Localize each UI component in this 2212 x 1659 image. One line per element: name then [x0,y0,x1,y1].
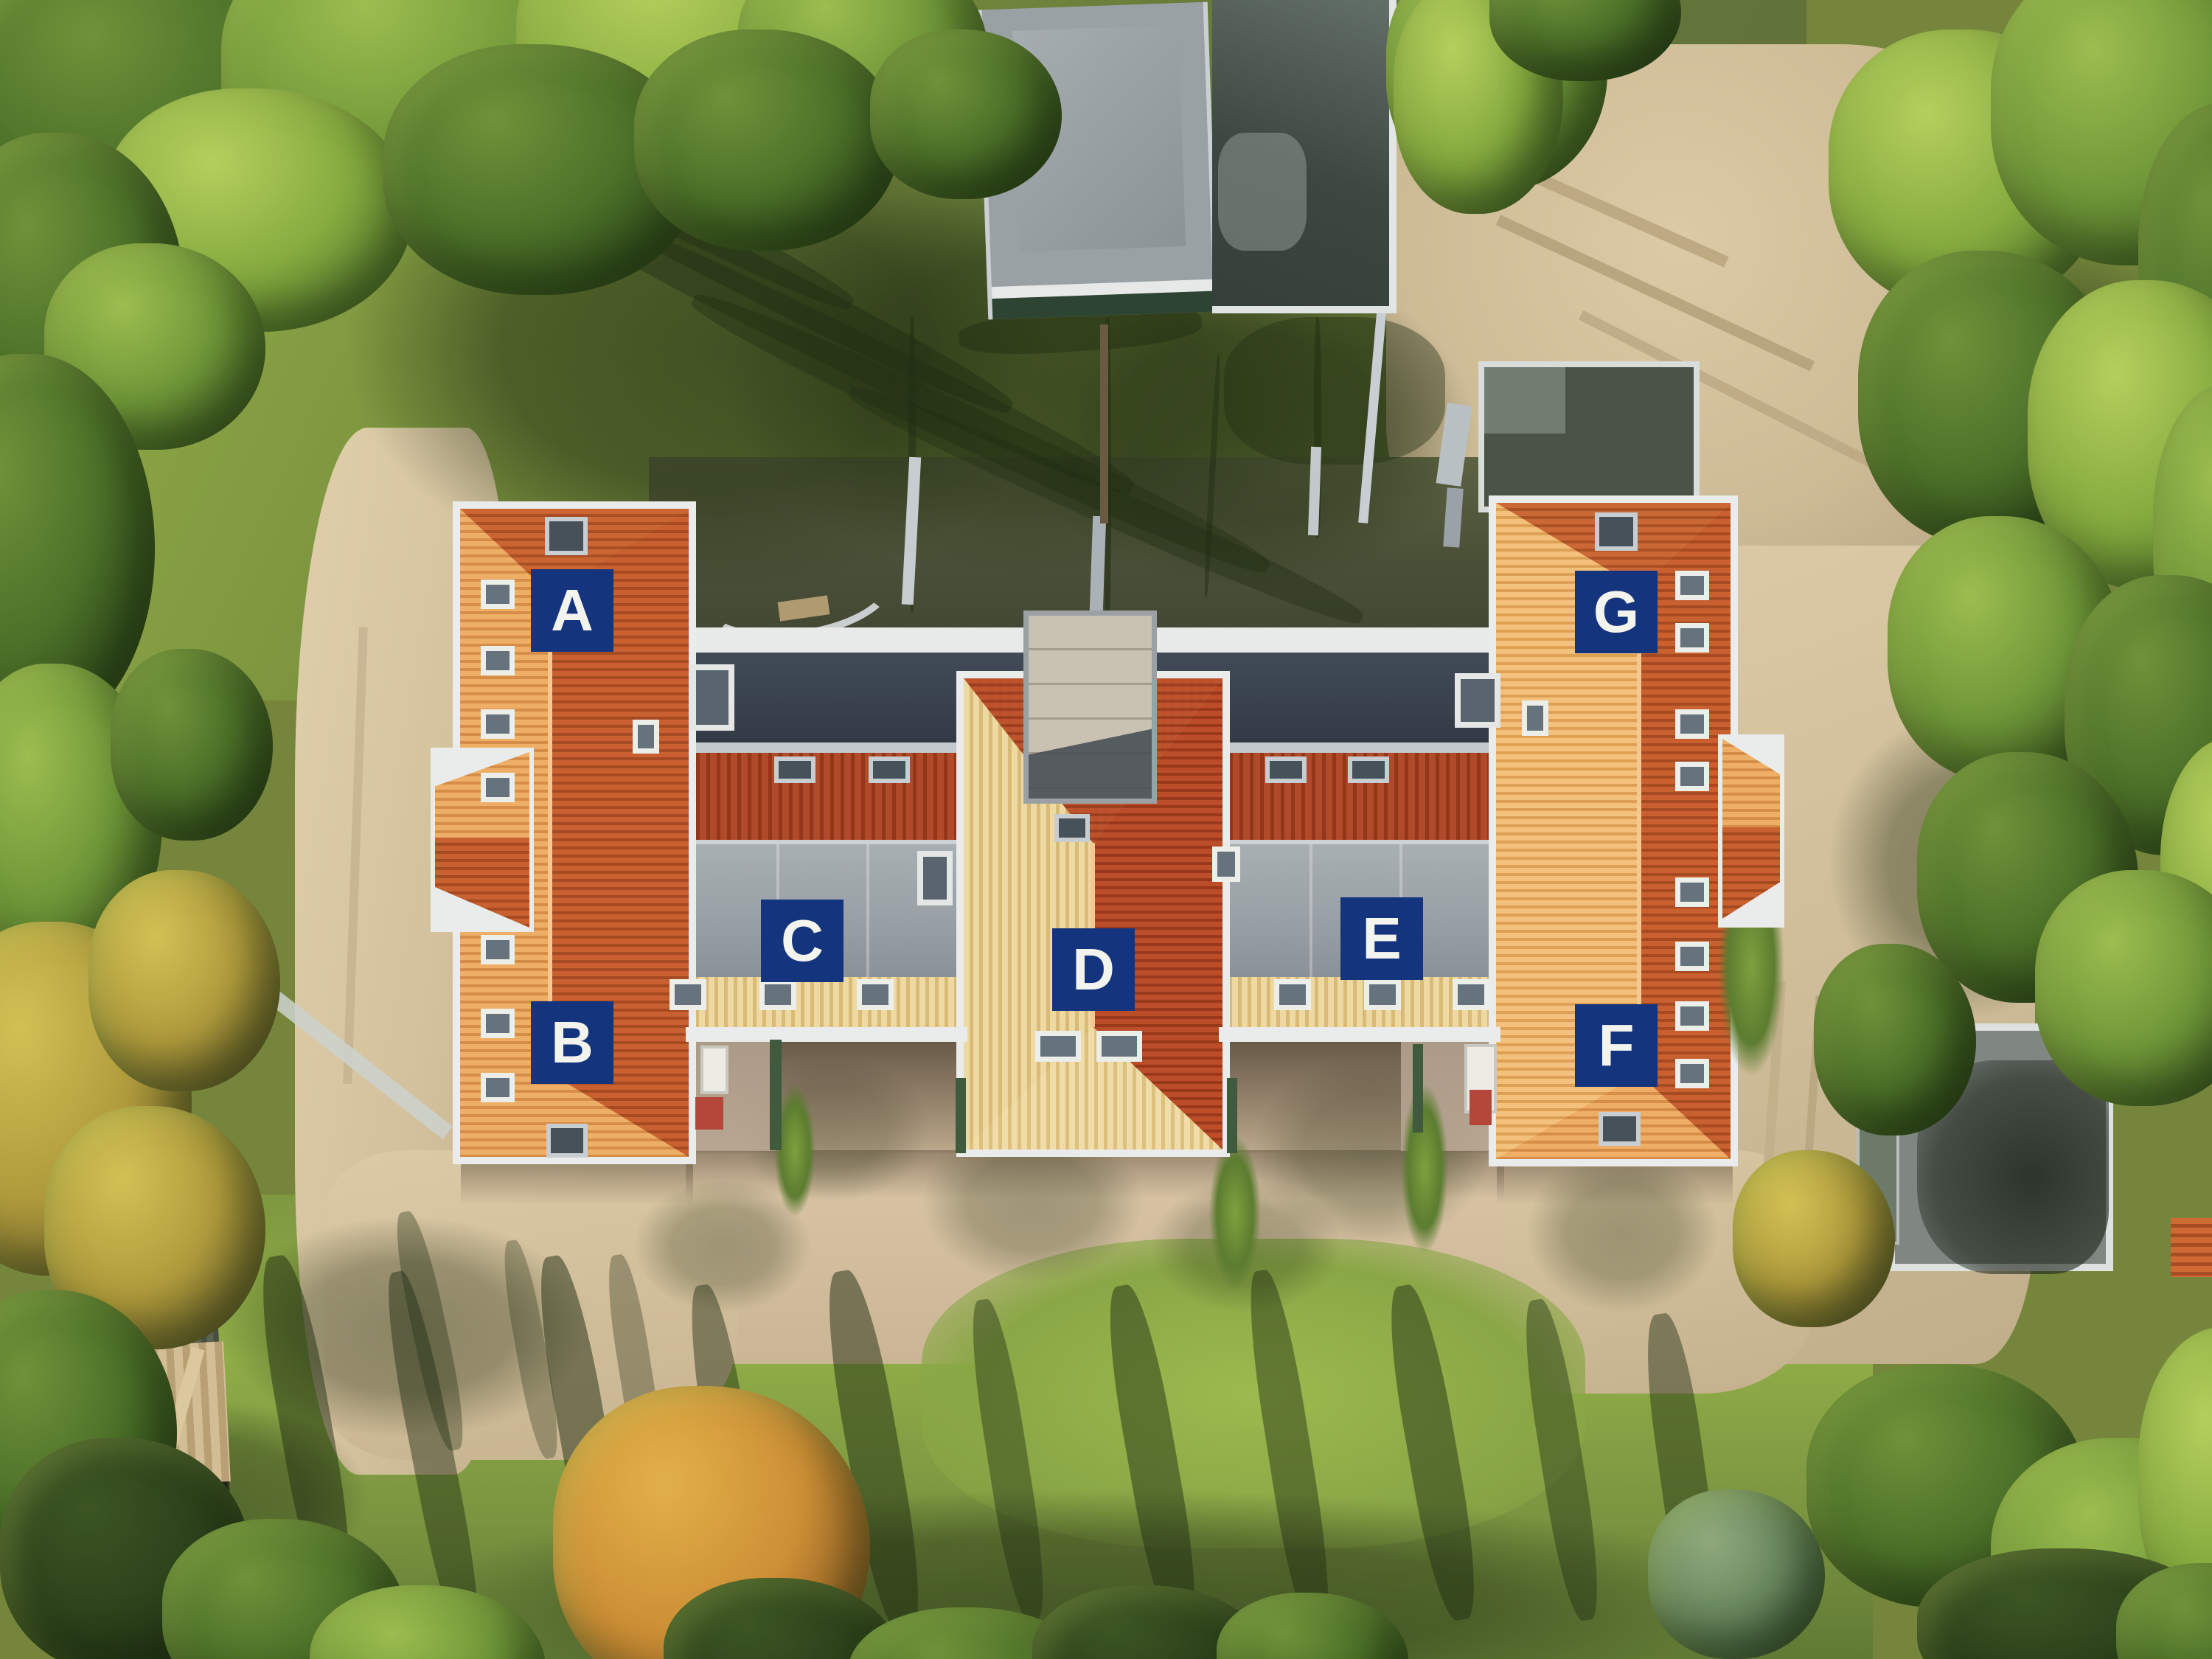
roof-window [669,979,706,1010]
tree-shadow [1526,1150,1718,1312]
roof-window [481,935,515,964]
roof-window [481,773,515,802]
roof-window [1453,979,1489,1010]
skylight [869,757,910,783]
unit-label-d: D [1052,928,1135,1011]
unit-label-f: F [1575,1004,1658,1087]
garage-rear-sunlit [1484,367,1565,434]
facade-door [700,1046,728,1094]
pipe [1100,324,1108,524]
roof-window [1096,1031,1142,1062]
roof-window [1675,571,1709,600]
wing-right-ridge [1637,588,1641,1074]
skylight [545,517,588,555]
skylight [1265,757,1307,783]
garage-roof-sunlit-corner [1218,133,1307,251]
connector-red-slope-west [689,753,964,840]
unit-label-c: C [761,900,844,982]
skylight [1599,1112,1641,1146]
unit-label-g: G [1575,571,1658,653]
cross-hip-south-slope [1722,827,1780,919]
roof-window [1675,709,1709,739]
aerial-photo: A B C D E F G [0,0,2212,1659]
tree-canopy [1648,1489,1825,1659]
facade-post [1413,1044,1423,1133]
block-c-south-slope [689,977,964,1027]
tree-canopy [111,649,273,841]
roof-window [1675,1001,1709,1031]
shadow-streak [1224,317,1445,465]
roof-window [481,646,515,675]
elevator-shaft [1023,611,1157,804]
weed-patch [1209,1135,1261,1290]
roof-window [481,580,515,609]
roof-window [857,979,894,1010]
orange-roof-fragment-right-edge [2171,1218,2212,1277]
unit-label-b: B [531,1001,613,1084]
roof-window [1274,979,1311,1010]
facade-post [770,1040,782,1150]
roof-hatch [917,851,953,905]
skylight [774,757,815,783]
roof-window [1522,700,1548,736]
roof-window [481,709,515,739]
facade-post [956,1078,966,1153]
wing-right-cross-hip [1718,734,1784,928]
facade-post [1227,1078,1237,1153]
roof-hatch [690,664,734,731]
roof-window [1035,1031,1081,1062]
unit-label-a: A [531,569,613,652]
roof-window [1675,1059,1709,1088]
garage-north-east [1212,0,1397,313]
block-e-eave [1219,1027,1500,1042]
roof-window [633,720,659,754]
roof-window [1364,979,1401,1010]
skylight [1348,757,1389,783]
garage-rear-right [1478,361,1700,512]
tree-canopy [870,29,1062,199]
roof-window [1212,846,1240,882]
cross-hip-north-slope [1722,739,1780,827]
skylight [1595,512,1638,551]
tree-canopy [1814,944,1976,1135]
unit-label-e: E [1340,897,1423,980]
roof-hatch [1455,673,1500,728]
tree-canopy [1733,1150,1895,1327]
tree-canopy [88,870,280,1091]
roof-window [1675,942,1709,971]
skylight [546,1124,588,1158]
facade-red-panel [695,1097,723,1130]
tree-canopy [634,29,900,251]
weed-patch [1401,1084,1448,1253]
roof-window [481,1073,515,1102]
cross-hip-south-slope [435,838,529,928]
tree-canopy [2035,870,2212,1106]
skylight [1054,814,1090,842]
block-c-eave [686,1027,967,1042]
roof-window [759,979,796,1010]
roof-window [1675,877,1709,907]
roof-window [1675,762,1709,791]
facade-red-panel [1470,1090,1492,1125]
roof-window [481,1009,515,1038]
roof-window [1675,623,1709,653]
